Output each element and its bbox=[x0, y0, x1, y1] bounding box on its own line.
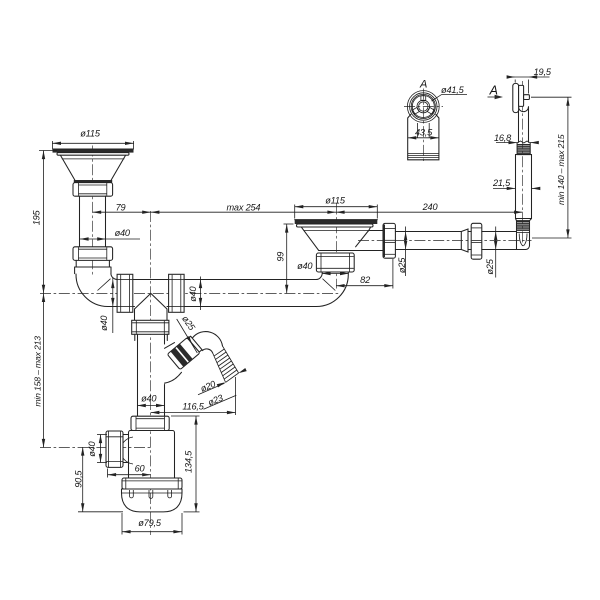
svg-text:82: 82 bbox=[360, 275, 370, 285]
svg-text:ø115: ø115 bbox=[325, 195, 346, 205]
svg-text:ø40: ø40 bbox=[188, 285, 198, 301]
svg-text:ø40: ø40 bbox=[115, 228, 131, 238]
svg-text:16,8: 16,8 bbox=[494, 133, 512, 143]
svg-text:79: 79 bbox=[116, 202, 126, 212]
svg-text:ø25: ø25 bbox=[397, 257, 407, 273]
svg-text:134,5: 134,5 bbox=[184, 450, 194, 473]
svg-text:195: 195 bbox=[32, 209, 42, 225]
svg-text:min 140 – max 215: min 140 – max 215 bbox=[556, 134, 566, 205]
svg-text:116,5: 116,5 bbox=[182, 401, 204, 411]
svg-text:ø25: ø25 bbox=[485, 258, 495, 274]
svg-text:max 254: max 254 bbox=[226, 202, 260, 212]
svg-text:A: A bbox=[419, 79, 427, 91]
svg-text:240: 240 bbox=[422, 202, 439, 212]
svg-text:min 158 – max 213: min 158 – max 213 bbox=[33, 336, 43, 407]
svg-text:ø41,5: ø41,5 bbox=[441, 85, 465, 95]
svg-text:ø115: ø115 bbox=[80, 129, 101, 139]
svg-text:60: 60 bbox=[135, 464, 146, 474]
svg-text:19,5: 19,5 bbox=[534, 67, 552, 77]
svg-text:ø40: ø40 bbox=[141, 394, 157, 404]
svg-text:90,5: 90,5 bbox=[73, 470, 83, 488]
svg-text:99: 99 bbox=[275, 252, 285, 262]
svg-text:ø40: ø40 bbox=[87, 440, 97, 456]
svg-text:ø79,5: ø79,5 bbox=[138, 518, 162, 528]
svg-text:ø40: ø40 bbox=[99, 315, 109, 331]
svg-text:21,5: 21,5 bbox=[492, 178, 511, 188]
svg-text:43,5: 43,5 bbox=[415, 128, 433, 138]
svg-text:ø40: ø40 bbox=[297, 261, 313, 271]
